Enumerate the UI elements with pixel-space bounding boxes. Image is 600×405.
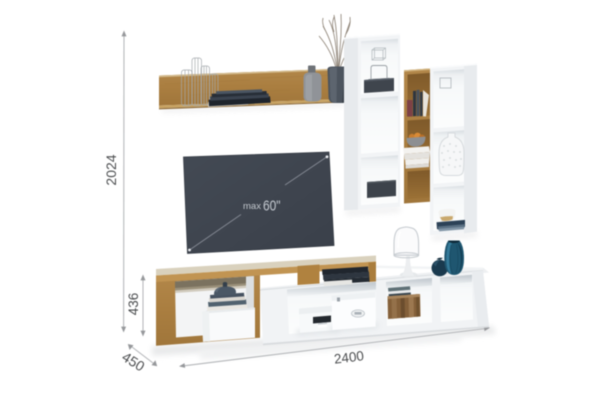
svg-text:max: max (243, 201, 261, 212)
svg-text:60": 60" (263, 198, 281, 215)
svg-text:2024: 2024 (103, 154, 119, 185)
svg-text:436: 436 (126, 293, 141, 316)
